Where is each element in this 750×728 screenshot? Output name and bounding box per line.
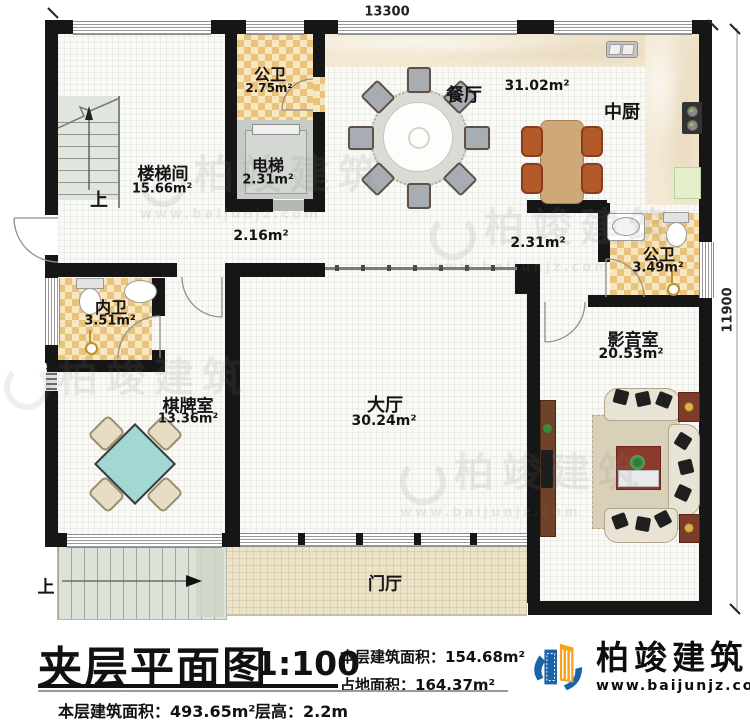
logo-icon	[528, 636, 586, 698]
watermark-text: 柏竣建筑	[454, 450, 646, 496]
company-name: 柏竣建筑	[596, 641, 750, 674]
room-label-foyer: 门厅	[368, 570, 402, 595]
watermark-url: www.baijunjz.com	[140, 207, 386, 222]
company-logo: 柏竣建筑 www.baijunjz.com	[528, 636, 750, 698]
stat-level-height: 层高：2.2m	[255, 698, 348, 722]
room-area-hall: 30.24m²	[351, 413, 416, 429]
stat-level-area: 本层建筑面积：493.65m²	[58, 698, 255, 722]
stairs-up-label: 上	[38, 573, 55, 598]
divider	[38, 690, 508, 692]
corridor-area-left: 2.16m²	[233, 228, 288, 244]
room-label-dining: 餐厅	[446, 81, 482, 107]
corridor-area-right: 2.31m²	[510, 235, 565, 251]
room-label-kitchen: 中厨	[604, 98, 640, 124]
watermark-text: 柏竣建筑	[58, 355, 250, 401]
floor-plan-page: 柏竣建筑 www.baijunjz.com 柏竣建筑 www.baijunjz.…	[0, 0, 750, 728]
stat-floor-area: 本层建筑面积：154.68m²	[340, 646, 525, 667]
divider	[38, 684, 338, 688]
room-area-bath-right: 3.49m²	[632, 261, 683, 276]
room-area-elevator: 2.31m²	[242, 173, 293, 188]
dimension-right: 11900	[721, 287, 736, 332]
room-area-stair-hall: 15.66m²	[132, 182, 192, 197]
watermark-url: www.baijunjz.com	[400, 505, 646, 520]
room-area-bath-inner: 3.51m²	[84, 314, 135, 329]
room-area-dining: 31.02m²	[504, 78, 569, 94]
title-block: 夹层平面图 1:100 本层建筑面积：154.68m² 占地面积：164.37m…	[0, 628, 750, 728]
watermark: 柏竣建筑 www.baijunjz.com	[400, 440, 646, 520]
dimension-top: 13300	[364, 5, 409, 20]
room-area-media: 20.53m²	[598, 346, 663, 362]
room-area-games: 13.36m²	[158, 412, 218, 427]
stairs-up-label: 上	[90, 186, 108, 212]
company-website: www.baijunjz.com	[596, 678, 750, 694]
room-area-bath-top: 2.75m²	[245, 81, 292, 95]
